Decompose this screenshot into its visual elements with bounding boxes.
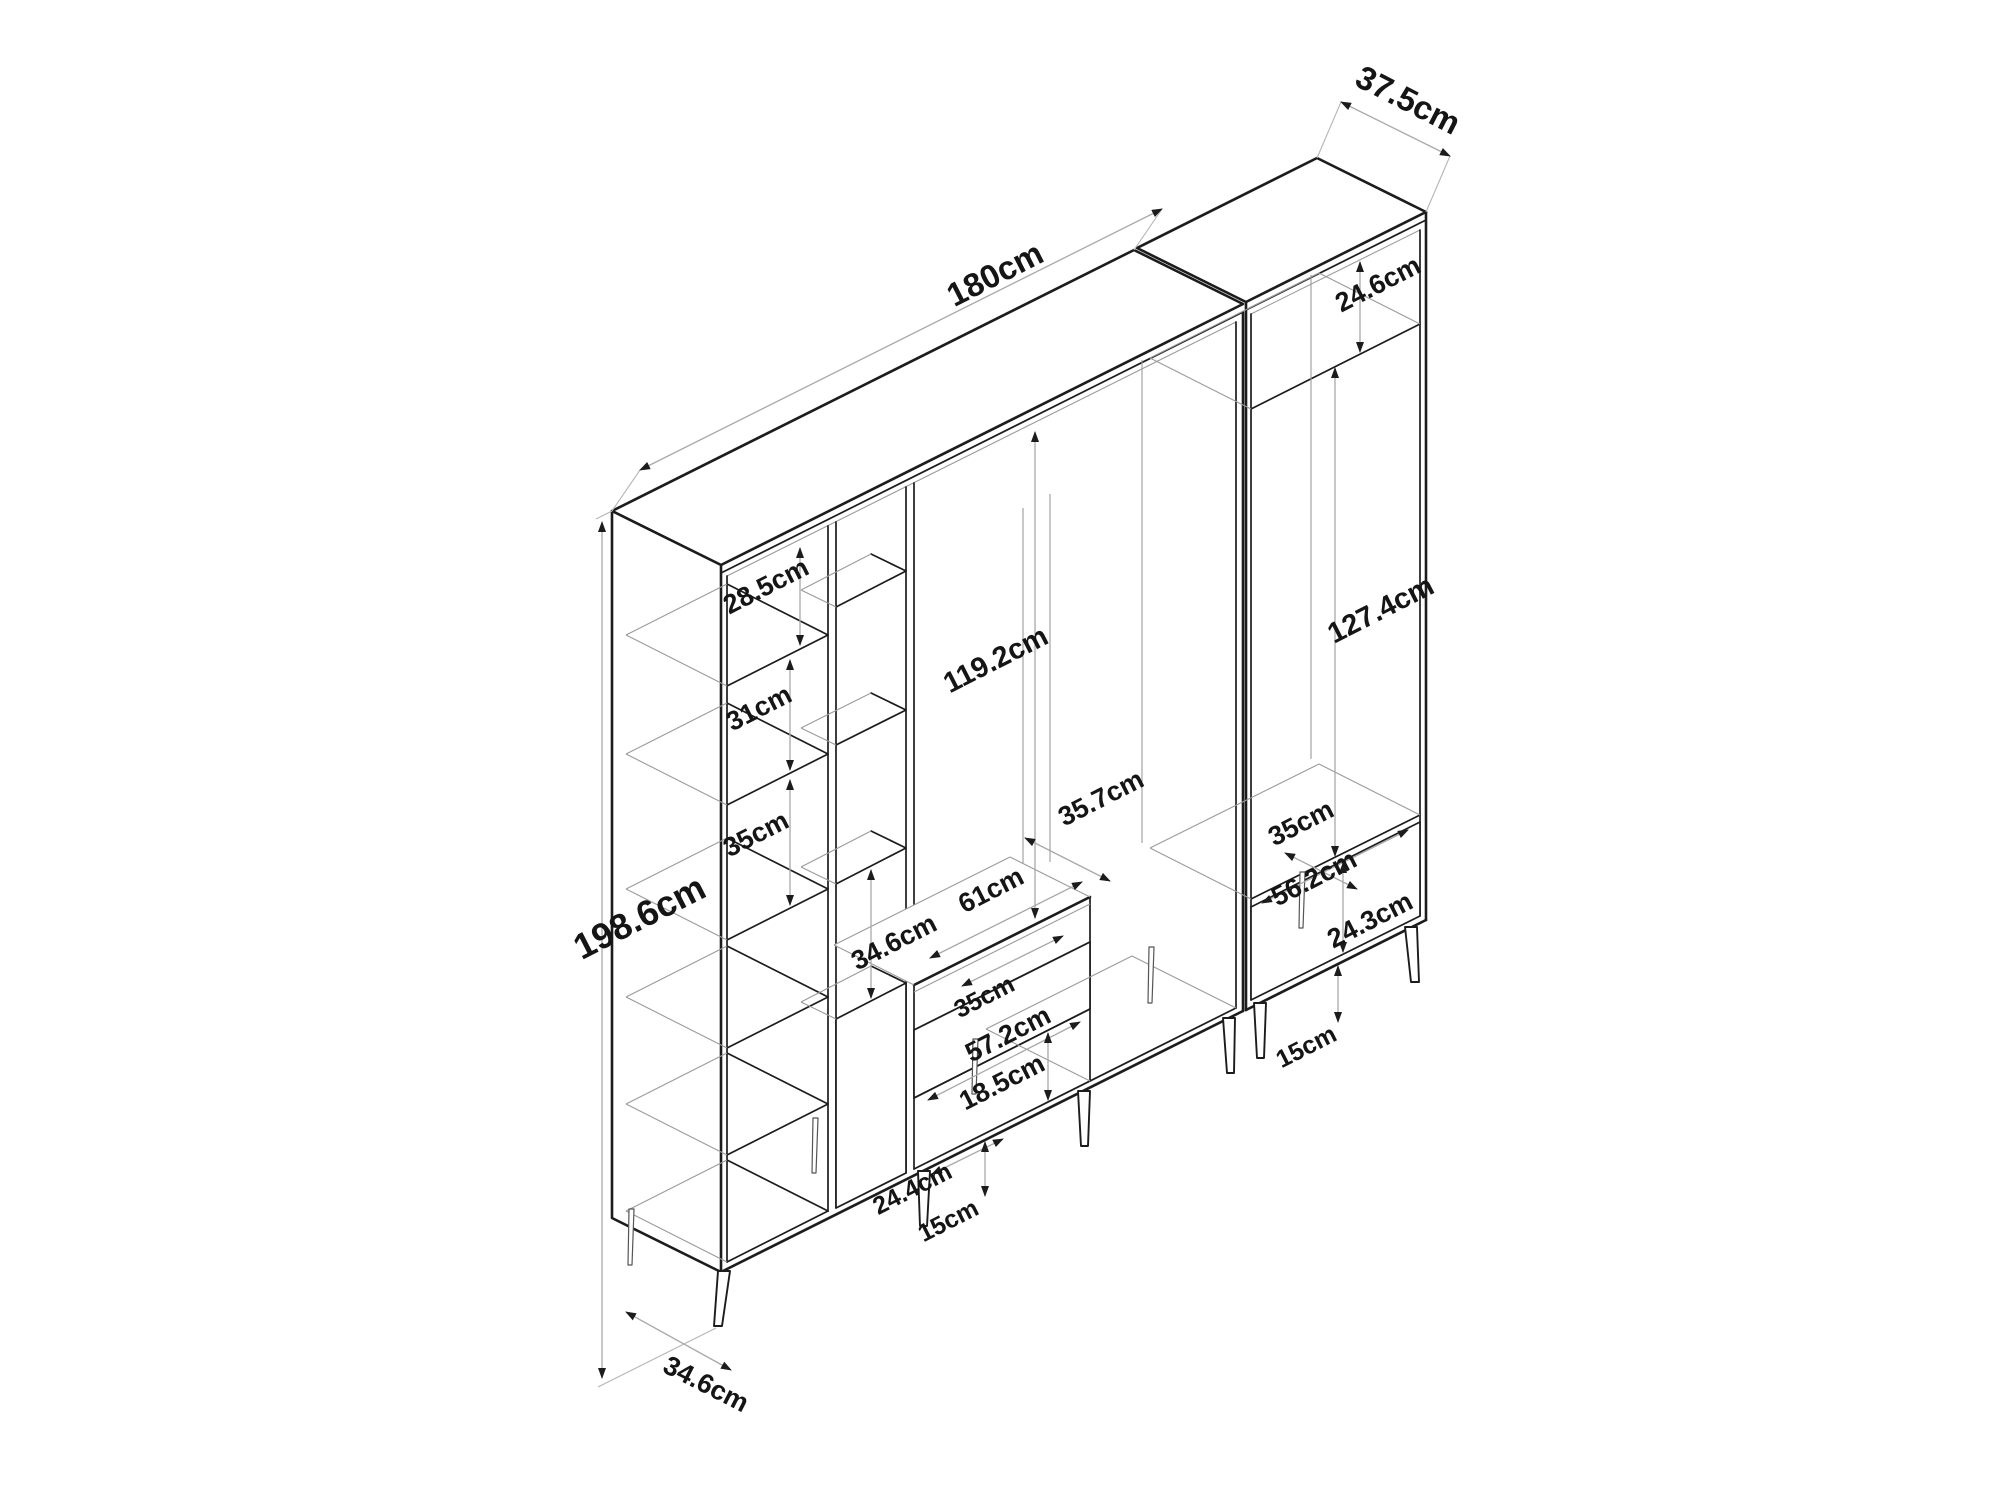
dim-total-depth: 37.5cm [1350,58,1467,142]
left-unit [612,250,1243,1272]
left-unit-top-face [612,250,1243,565]
dim-center-open-height: 119.2cm [938,620,1053,700]
dim-left-shelf-3: 35cm [718,805,793,863]
front-leg [714,1271,730,1326]
dim-right-open-height: 127.4cm [1323,570,1440,650]
dim-bench-depth: 35.7cm [1053,764,1148,832]
front-leg [1405,927,1419,982]
mid-column-lower-panel [836,983,906,1208]
front-leg [1223,1018,1235,1073]
front-leg [1254,1003,1266,1058]
dim-left-shelf-2: 31cm [721,679,796,737]
dim-floor-depth: 34.6cm [658,1350,753,1418]
front-leg [1078,1091,1090,1146]
dim-right-leg-height: 15cm [1272,1020,1342,1074]
isometric-drawing: 180cm 37.5cm 198.6cm 28.5cm 31cm 35cm 34… [0,0,2000,1499]
dim-left-shelf-top: 28.5cm [718,552,813,620]
dim-right-floor-depth: 35cm [1263,794,1338,852]
furniture-dimension-diagram: 180cm 37.5cm 198.6cm 28.5cm 31cm 35cm 34… [0,0,2000,1499]
